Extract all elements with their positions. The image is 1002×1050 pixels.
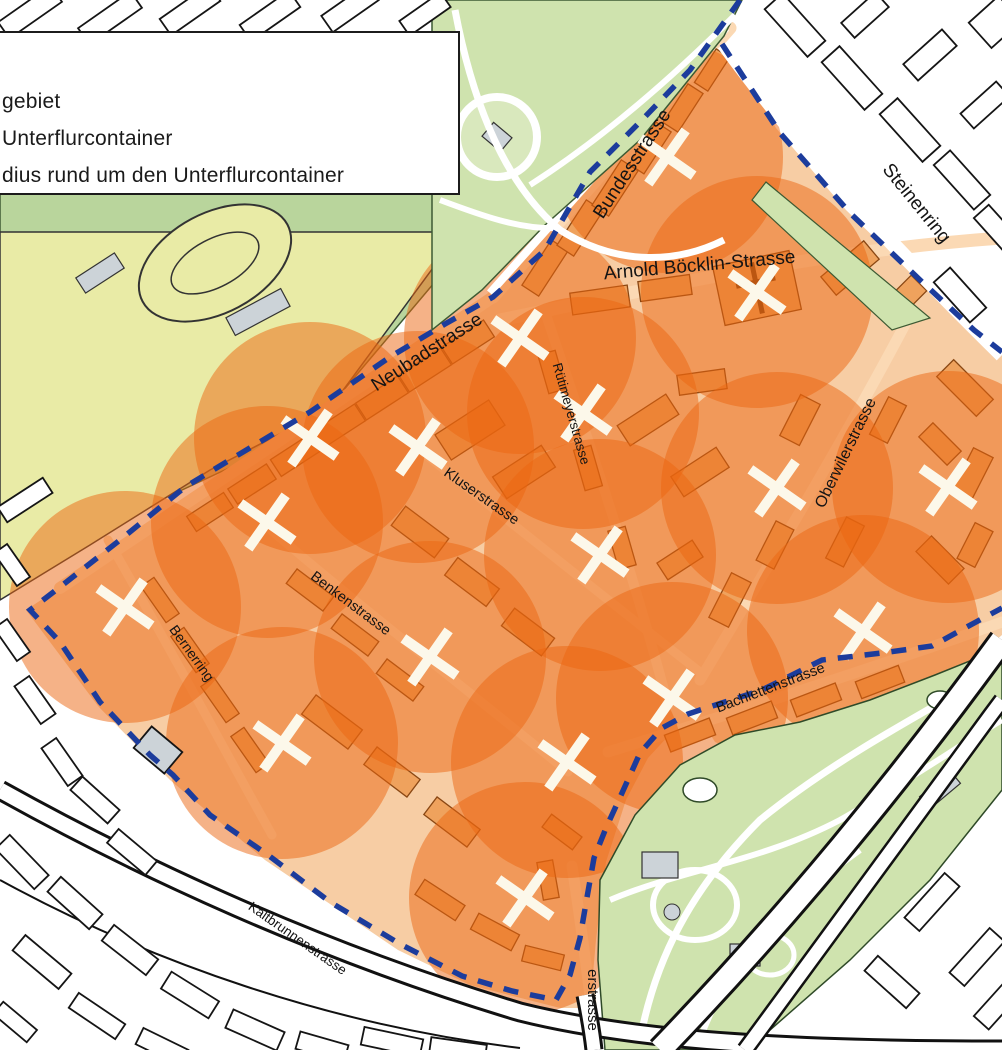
street-label: erstrasse (584, 969, 601, 1031)
pond (683, 778, 717, 802)
legend-item-radius: dius rund um den Unterflurcontainer (2, 164, 344, 188)
legend-item-container: Unterflurcontainer (2, 127, 173, 151)
legend-item-area: gebiet (2, 90, 60, 114)
map-screenshot: BundesstrasseSteinenringArnold Böcklin-S… (0, 0, 1002, 1050)
legend-box: gebiet Unterflurcontainer dius rund um d… (0, 31, 460, 195)
